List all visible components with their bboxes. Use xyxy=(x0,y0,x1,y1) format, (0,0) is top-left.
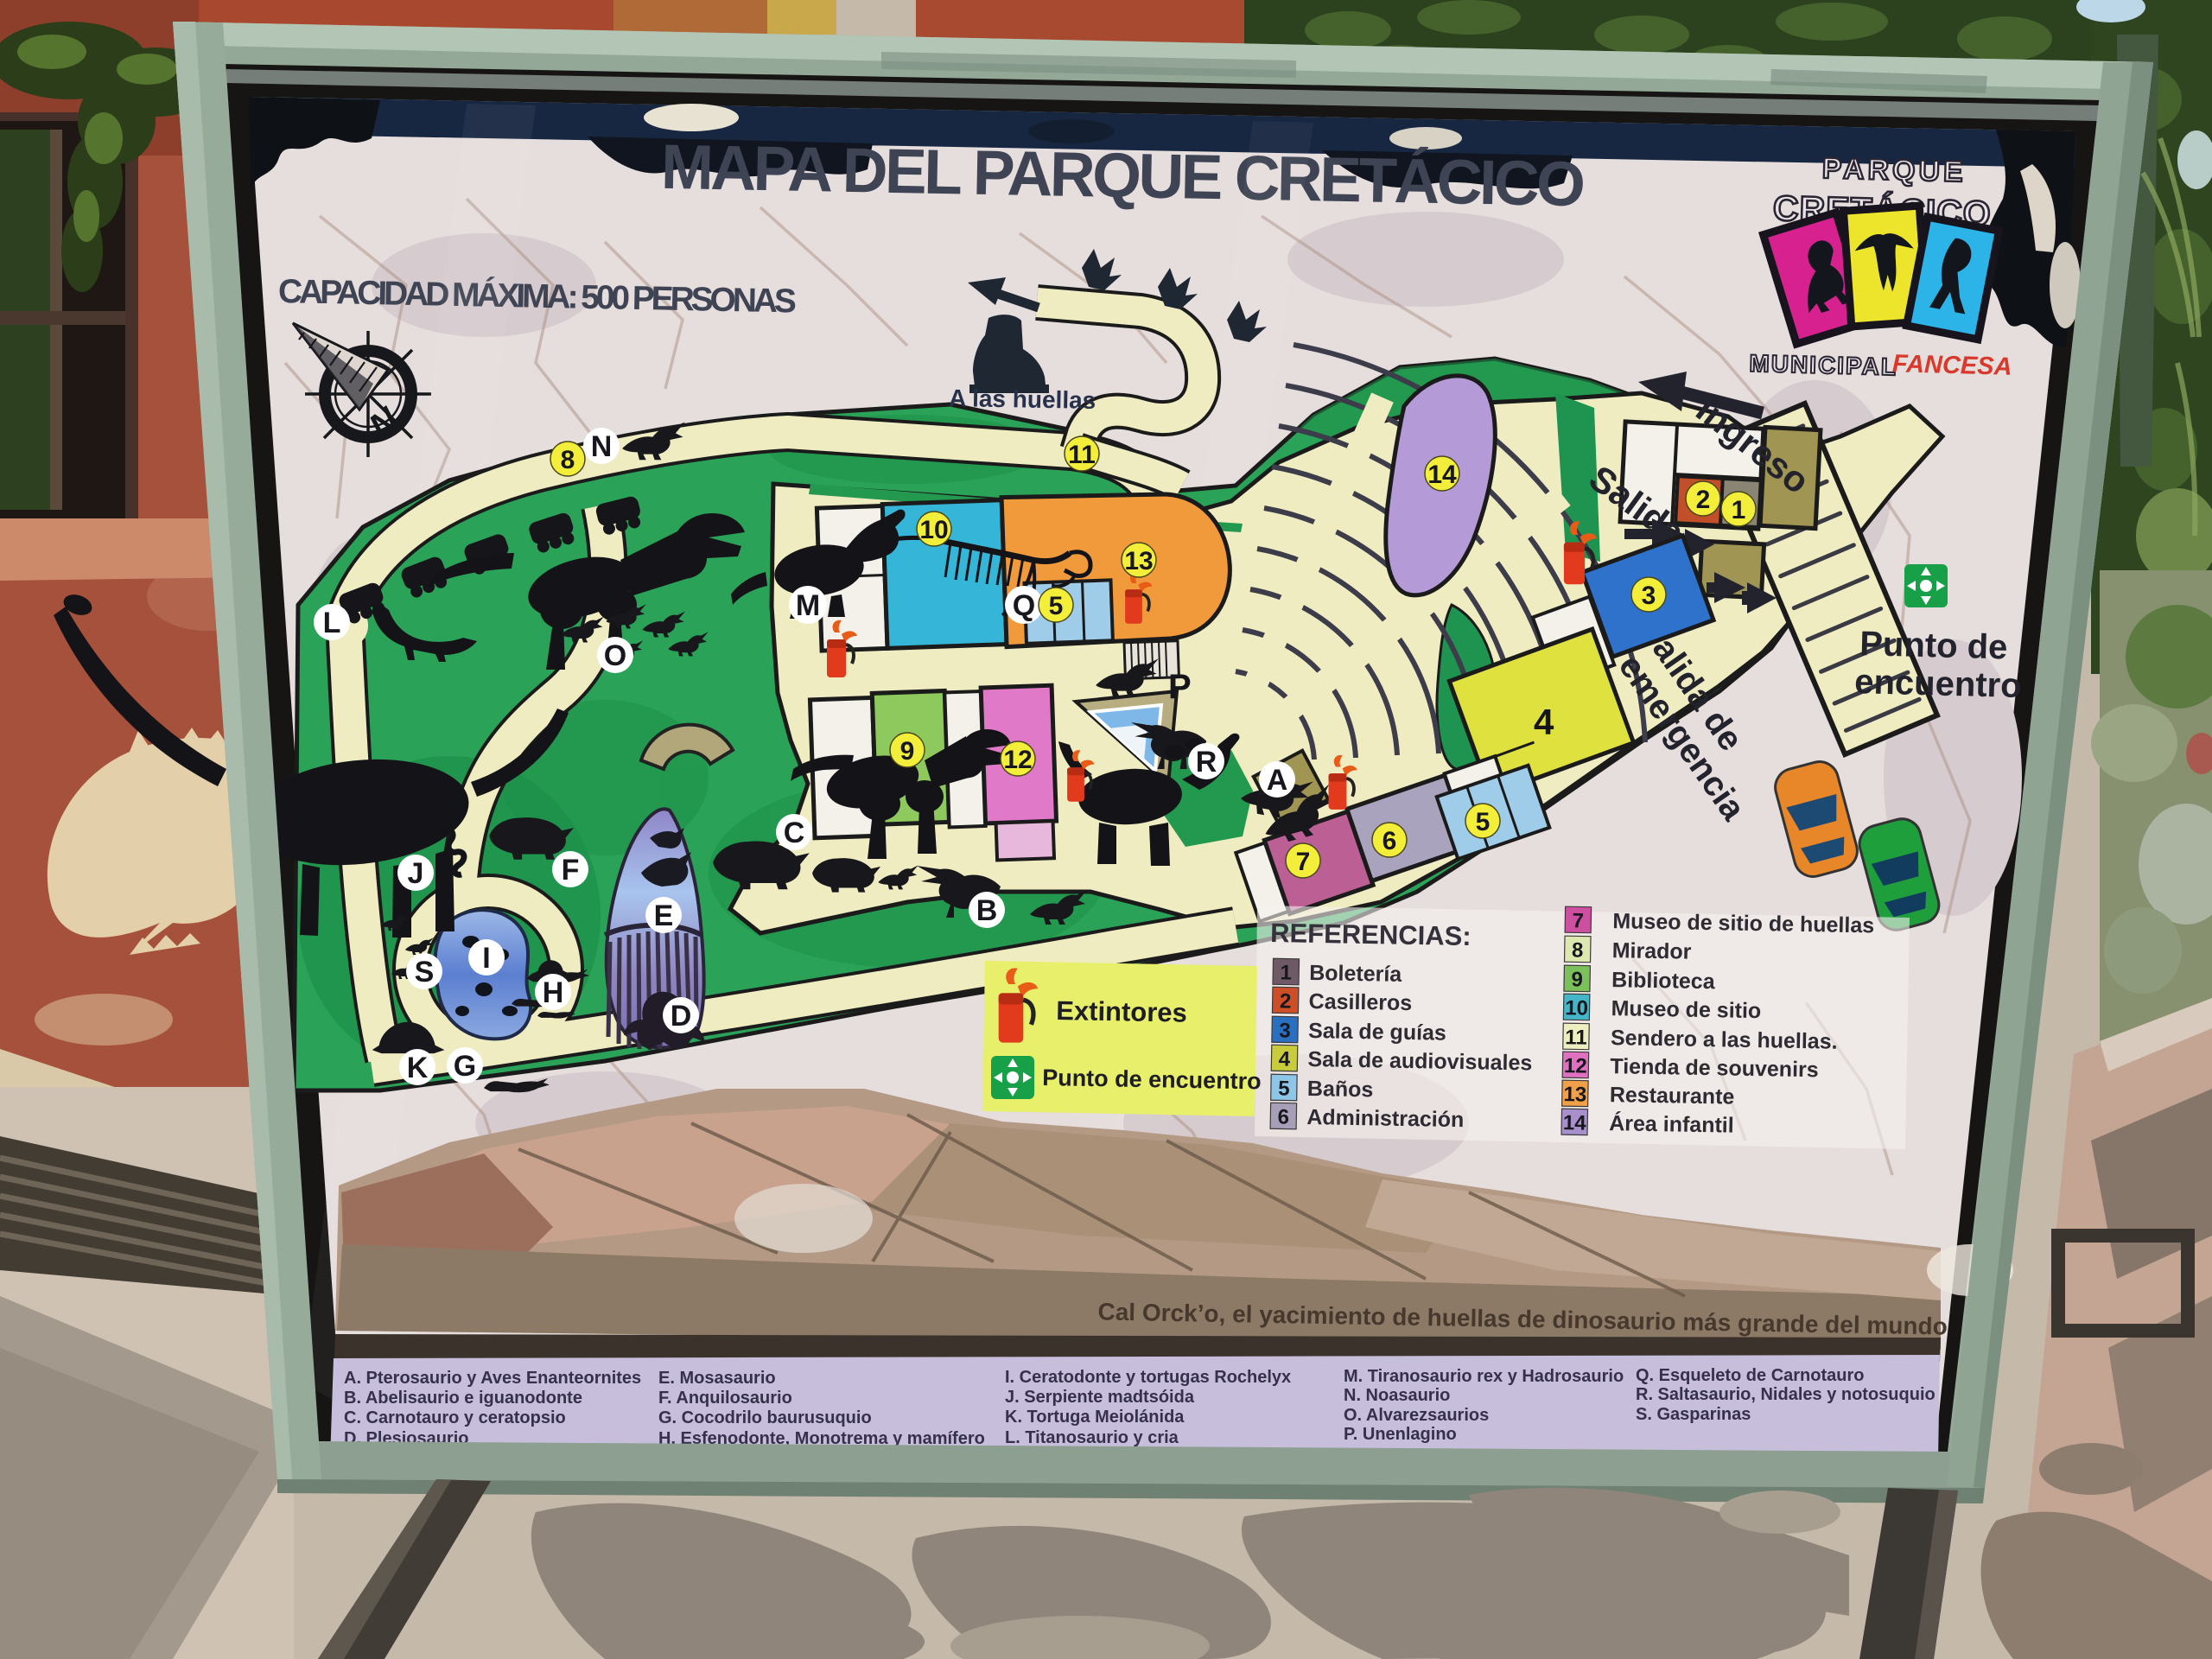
svg-text:Restaurante: Restaurante xyxy=(1610,1083,1735,1109)
svg-text:Tienda de souvenirs: Tienda de souvenirs xyxy=(1610,1054,1819,1082)
svg-text:G: G xyxy=(454,1050,476,1083)
svg-text:Q: Q xyxy=(1013,589,1035,622)
svg-text:12: 12 xyxy=(1003,746,1032,774)
svg-text:Baños: Baños xyxy=(1307,1077,1374,1102)
svg-text:L. Titanosaurio y cria: L. Titanosaurio y cria xyxy=(1005,1428,1179,1447)
svg-text:6: 6 xyxy=(1277,1105,1289,1128)
svg-text:K: K xyxy=(407,1052,429,1084)
svg-text:I: I xyxy=(482,942,490,975)
svg-text:9: 9 xyxy=(1571,968,1583,991)
svg-text:E. Mosasaurio: E. Mosasaurio xyxy=(658,1369,776,1388)
svg-text:Sala de audiovisuales: Sala de audiovisuales xyxy=(1307,1047,1532,1076)
svg-text:F. Anquilosaurio: F. Anquilosaurio xyxy=(658,1389,792,1408)
svg-text:K. Tortuga Meiolánida: K. Tortuga Meiolánida xyxy=(1005,1408,1185,1427)
svg-text:5: 5 xyxy=(1476,808,1491,836)
svg-text:M. Tiranosaurio rex y Hadrosau: M. Tiranosaurio rex y Hadrosaurio xyxy=(1344,1367,1624,1386)
svg-text:R. Saltasaurio, Nidales y noto: R. Saltasaurio, Nidales y notosuquio xyxy=(1636,1385,1935,1404)
svg-text:2: 2 xyxy=(1280,989,1292,1013)
svg-text:14: 14 xyxy=(1427,461,1457,489)
svg-text:Museo de sitio: Museo de sitio xyxy=(1611,996,1761,1023)
svg-text:I. Ceratodonte y tortugas Roch: I. Ceratodonte y tortugas Rochelyx xyxy=(1005,1368,1291,1387)
svg-text:3: 3 xyxy=(1279,1019,1291,1042)
svg-text:Punto de encuentro: Punto de encuentro xyxy=(1042,1065,1262,1094)
svg-text:O. Alvarezsaurios: O. Alvarezsaurios xyxy=(1344,1406,1489,1425)
svg-text:12: 12 xyxy=(1564,1054,1587,1077)
svg-text:Sala de guías: Sala de guías xyxy=(1308,1019,1446,1046)
svg-text:4: 4 xyxy=(1279,1047,1291,1071)
svg-text:10: 10 xyxy=(919,516,948,544)
svg-text:Punto de: Punto de xyxy=(1859,625,2008,666)
svg-text:8: 8 xyxy=(1572,938,1584,962)
svg-text:1: 1 xyxy=(1732,496,1746,524)
svg-text:Boletería: Boletería xyxy=(1309,961,1403,987)
svg-text:G. Cocodrilo baurusuquio: G. Cocodrilo baurusuquio xyxy=(658,1408,872,1427)
svg-text:Mirador: Mirador xyxy=(1612,938,1692,964)
svg-text:M: M xyxy=(796,589,820,622)
svg-text:11: 11 xyxy=(1565,1026,1587,1049)
svg-text:C. Carnotauro y ceratopsio: C. Carnotauro y ceratopsio xyxy=(344,1408,566,1427)
svg-text:A. Pterosaurio y Aves Enanteor: A. Pterosaurio y Aves Enanteornites xyxy=(344,1369,641,1388)
svg-text:10: 10 xyxy=(1565,996,1588,1020)
svg-text:3: 3 xyxy=(1642,582,1656,610)
svg-text:Casilleros: Casilleros xyxy=(1308,989,1412,1015)
svg-text:Área infantil: Área infantil xyxy=(1609,1110,1734,1138)
svg-text:7: 7 xyxy=(1296,848,1311,876)
svg-text:11: 11 xyxy=(1068,441,1096,469)
svg-text:R: R xyxy=(1196,746,1217,779)
svg-text:S: S xyxy=(415,956,435,988)
svg-text:J: J xyxy=(408,857,424,890)
svg-text:4: 4 xyxy=(1534,702,1554,742)
svg-text:Sendero a las huellas.: Sendero a las huellas. xyxy=(1611,1026,1838,1054)
svg-text:13: 13 xyxy=(1563,1083,1586,1106)
svg-text:2: 2 xyxy=(1696,486,1711,514)
svg-text:FANCESA: FANCESA xyxy=(1892,350,2012,381)
svg-text:13: 13 xyxy=(1124,547,1153,575)
svg-text:H: H xyxy=(543,976,564,1009)
svg-text:P. Unenlagino: P. Unenlagino xyxy=(1344,1425,1457,1444)
svg-text:7: 7 xyxy=(1572,909,1584,932)
svg-text:Administración: Administración xyxy=(1306,1105,1464,1132)
svg-text:encuentro: encuentro xyxy=(1854,663,2022,705)
svg-text:Extintores: Extintores xyxy=(1056,995,1187,1028)
svg-text:A: A xyxy=(1267,764,1288,797)
svg-text:9: 9 xyxy=(900,737,915,766)
svg-text:N: N xyxy=(591,430,613,463)
svg-text:B: B xyxy=(976,894,998,927)
svg-text:PARQUE: PARQUE xyxy=(1821,152,1967,188)
svg-text:14: 14 xyxy=(1563,1111,1587,1135)
svg-text:F: F xyxy=(562,854,580,887)
svg-text:Biblioteca: Biblioteca xyxy=(1611,968,1716,994)
svg-text:5: 5 xyxy=(1049,592,1064,620)
svg-text:D: D xyxy=(671,1000,692,1033)
svg-text:P: P xyxy=(1168,668,1192,706)
svg-text:L: L xyxy=(323,607,341,639)
svg-text:O: O xyxy=(604,639,626,672)
svg-text:REFERENCIAS:: REFERENCIAS: xyxy=(1270,918,1471,951)
svg-text:B. Abelisaurio e iguanodonte: B. Abelisaurio e iguanodonte xyxy=(344,1389,582,1408)
svg-text:6: 6 xyxy=(1382,827,1397,855)
svg-text:5: 5 xyxy=(1278,1077,1290,1100)
svg-text:1: 1 xyxy=(1280,961,1292,984)
svg-text:E: E xyxy=(654,899,674,932)
svg-text:J. Serpiente madtsóida: J. Serpiente madtsóida xyxy=(1005,1388,1195,1407)
svg-text:A las huellas: A las huellas xyxy=(949,385,1096,414)
svg-text:N. Noasaurio: N. Noasaurio xyxy=(1344,1386,1450,1405)
svg-text:Q. Esqueleto de Carnotauro: Q. Esqueleto de Carnotauro xyxy=(1636,1366,1864,1385)
svg-text:C: C xyxy=(784,817,805,849)
svg-text:8: 8 xyxy=(561,446,575,474)
svg-text:Museo de sitio de huellas: Museo de sitio de huellas xyxy=(1612,909,1874,938)
svg-text:MUNICIPAL: MUNICIPAL xyxy=(1749,350,1897,380)
svg-text:S. Gasparinas: S. Gasparinas xyxy=(1636,1405,1751,1424)
